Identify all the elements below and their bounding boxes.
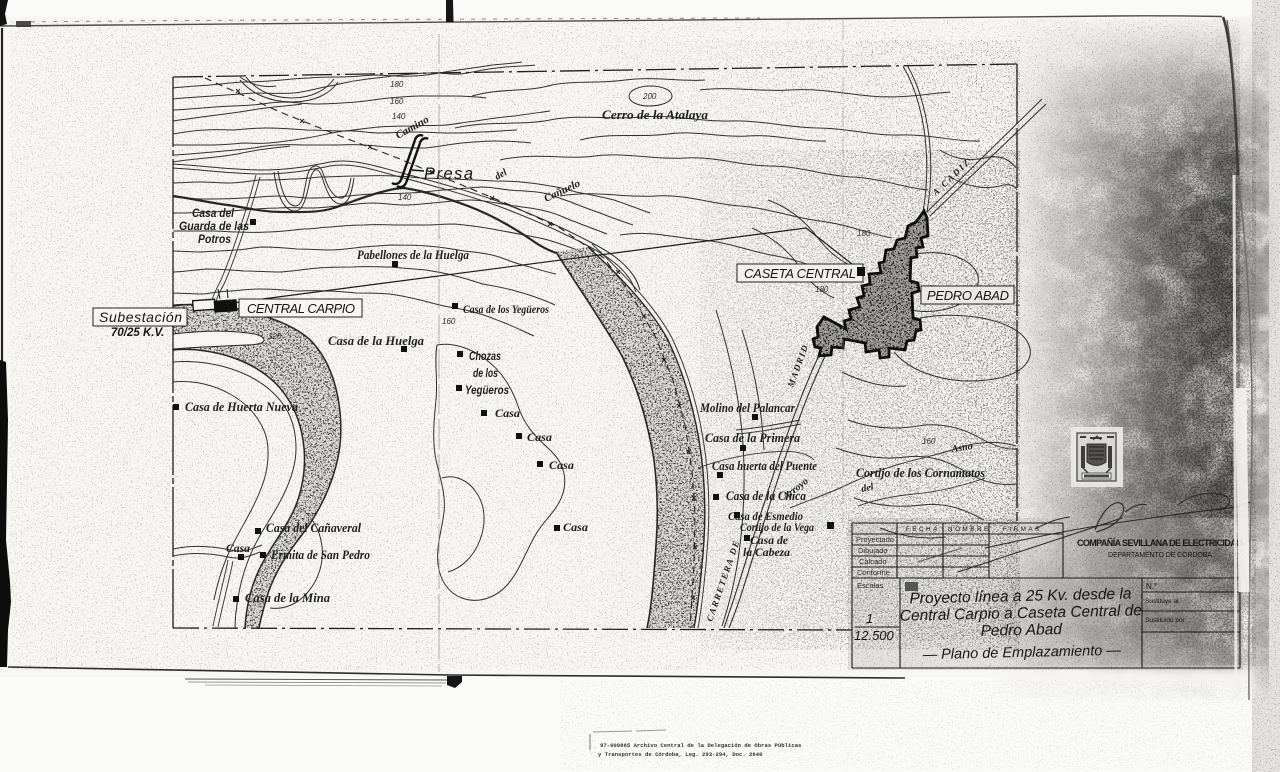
svg-text:Casa: Casa: [495, 408, 520, 420]
svg-text:120: 120: [268, 332, 282, 341]
svg-text:Chozas: Chozas: [469, 351, 501, 363]
svg-text:Pabellones de la Huelga: Pabellones de la Huelga: [357, 248, 469, 262]
svg-text:Calcado: Calcado: [859, 557, 887, 566]
svg-text:Casa de la Mina: Casa de la Mina: [245, 591, 330, 605]
svg-text:12.500: 12.500: [854, 628, 895, 643]
svg-text:97-000865 Archivo Central de: 97-000865 Archivo Central de la Delegaci…: [600, 742, 802, 749]
svg-text:Casa: Casa: [226, 543, 250, 555]
svg-text:1: 1: [866, 611, 873, 626]
svg-text:Escalas: Escalas: [857, 581, 884, 590]
svg-text:Proyectado: Proyectado: [856, 535, 894, 544]
svg-text:de los: de los: [473, 368, 498, 380]
svg-text:la Cabeza: la Cabeza: [743, 547, 790, 559]
svg-text:180: 180: [390, 80, 404, 89]
svg-text:Casa de los Yegüeros: Casa de los Yegüeros: [463, 304, 549, 316]
svg-text:Yegüeros: Yegüeros: [465, 385, 509, 397]
svg-text:Casa de Huerta Nueva: Casa de Huerta Nueva: [185, 400, 298, 414]
svg-text:Cortijo de la Vega: Cortijo de la Vega: [740, 522, 814, 534]
svg-text:N.°: N.°: [1146, 582, 1157, 591]
svg-text:200: 200: [642, 92, 657, 101]
svg-text:Pedro Abad: Pedro Abad: [980, 621, 1063, 640]
svg-text:y Transportes de Córdoba, Leg.: y Transportes de Córdoba, Leg. 293-294, …: [598, 751, 763, 758]
svg-text:Casa de la Primera: Casa de la Primera: [705, 431, 800, 445]
svg-text:Sustituido por: Sustituido por: [1145, 617, 1186, 624]
svg-text:Sustituye al: Sustituye al: [1145, 598, 1179, 605]
svg-text:Conforme: Conforme: [857, 568, 890, 577]
svg-text:Casa: Casa: [563, 522, 588, 534]
svg-text:70/25 K.V.: 70/25 K.V.: [111, 327, 164, 339]
svg-text:140: 140: [398, 193, 412, 202]
svg-text:160: 160: [390, 97, 404, 106]
svg-text:Casa huerta del Puente: Casa huerta del Puente: [712, 459, 817, 473]
svg-text:Casa de la Chica: Casa de la Chica: [726, 489, 806, 503]
svg-text:140: 140: [392, 112, 406, 121]
svg-text:Molino del Palancar: Molino del Palancar: [699, 401, 795, 415]
svg-text:COMPAÑÍA SEVILLANA DE ELECTRIC: COMPAÑÍA SEVILLANA DE ELECTRICIDAD: [1077, 538, 1243, 548]
svg-text:Presa: Presa: [424, 165, 475, 183]
svg-text:Casa de: Casa de: [750, 535, 788, 547]
svg-text:Casa del Cañaveral: Casa del Cañaveral: [266, 521, 361, 535]
svg-text:Guarda de las: Guarda de las: [179, 221, 249, 233]
svg-text:NOMBRE: NOMBRE: [948, 526, 991, 533]
svg-text:Ermita de San Pedro: Ermita de San Pedro: [270, 548, 370, 562]
svg-text:Casa del: Casa del: [192, 208, 235, 220]
svg-text:FECHA: FECHA: [906, 526, 940, 533]
svg-text:CASETA CENTRAL: CASETA CENTRAL: [744, 266, 856, 281]
svg-text:Casa: Casa: [527, 432, 552, 444]
svg-text:160: 160: [922, 437, 936, 446]
svg-text:Cortijo de los Cornamatos: Cortijo de los Cornamatos: [856, 466, 985, 480]
svg-text:Dibujado: Dibujado: [858, 546, 888, 555]
svg-text:Cerro de la Atalaya: Cerro de la Atalaya: [602, 107, 709, 122]
svg-text:Casa: Casa: [549, 460, 574, 472]
svg-text:180: 180: [815, 285, 829, 294]
svg-text:180: 180: [857, 229, 871, 238]
svg-text:Casa de la Huelga: Casa de la Huelga: [328, 334, 424, 348]
svg-text:Subestación: Subestación: [99, 309, 183, 325]
svg-text:PEDRO ABAD: PEDRO ABAD: [927, 288, 1009, 303]
svg-text:160: 160: [442, 317, 456, 326]
svg-text:Potros: Potros: [198, 234, 231, 246]
svg-text:DEPARTAMENTO DE CÓRDOBA: DEPARTAMENTO DE CÓRDOBA: [1108, 550, 1212, 559]
svg-text:CENTRAL CARPIO: CENTRAL CARPIO: [247, 301, 355, 316]
svg-text:FIRMAS: FIRMAS: [1003, 526, 1042, 533]
